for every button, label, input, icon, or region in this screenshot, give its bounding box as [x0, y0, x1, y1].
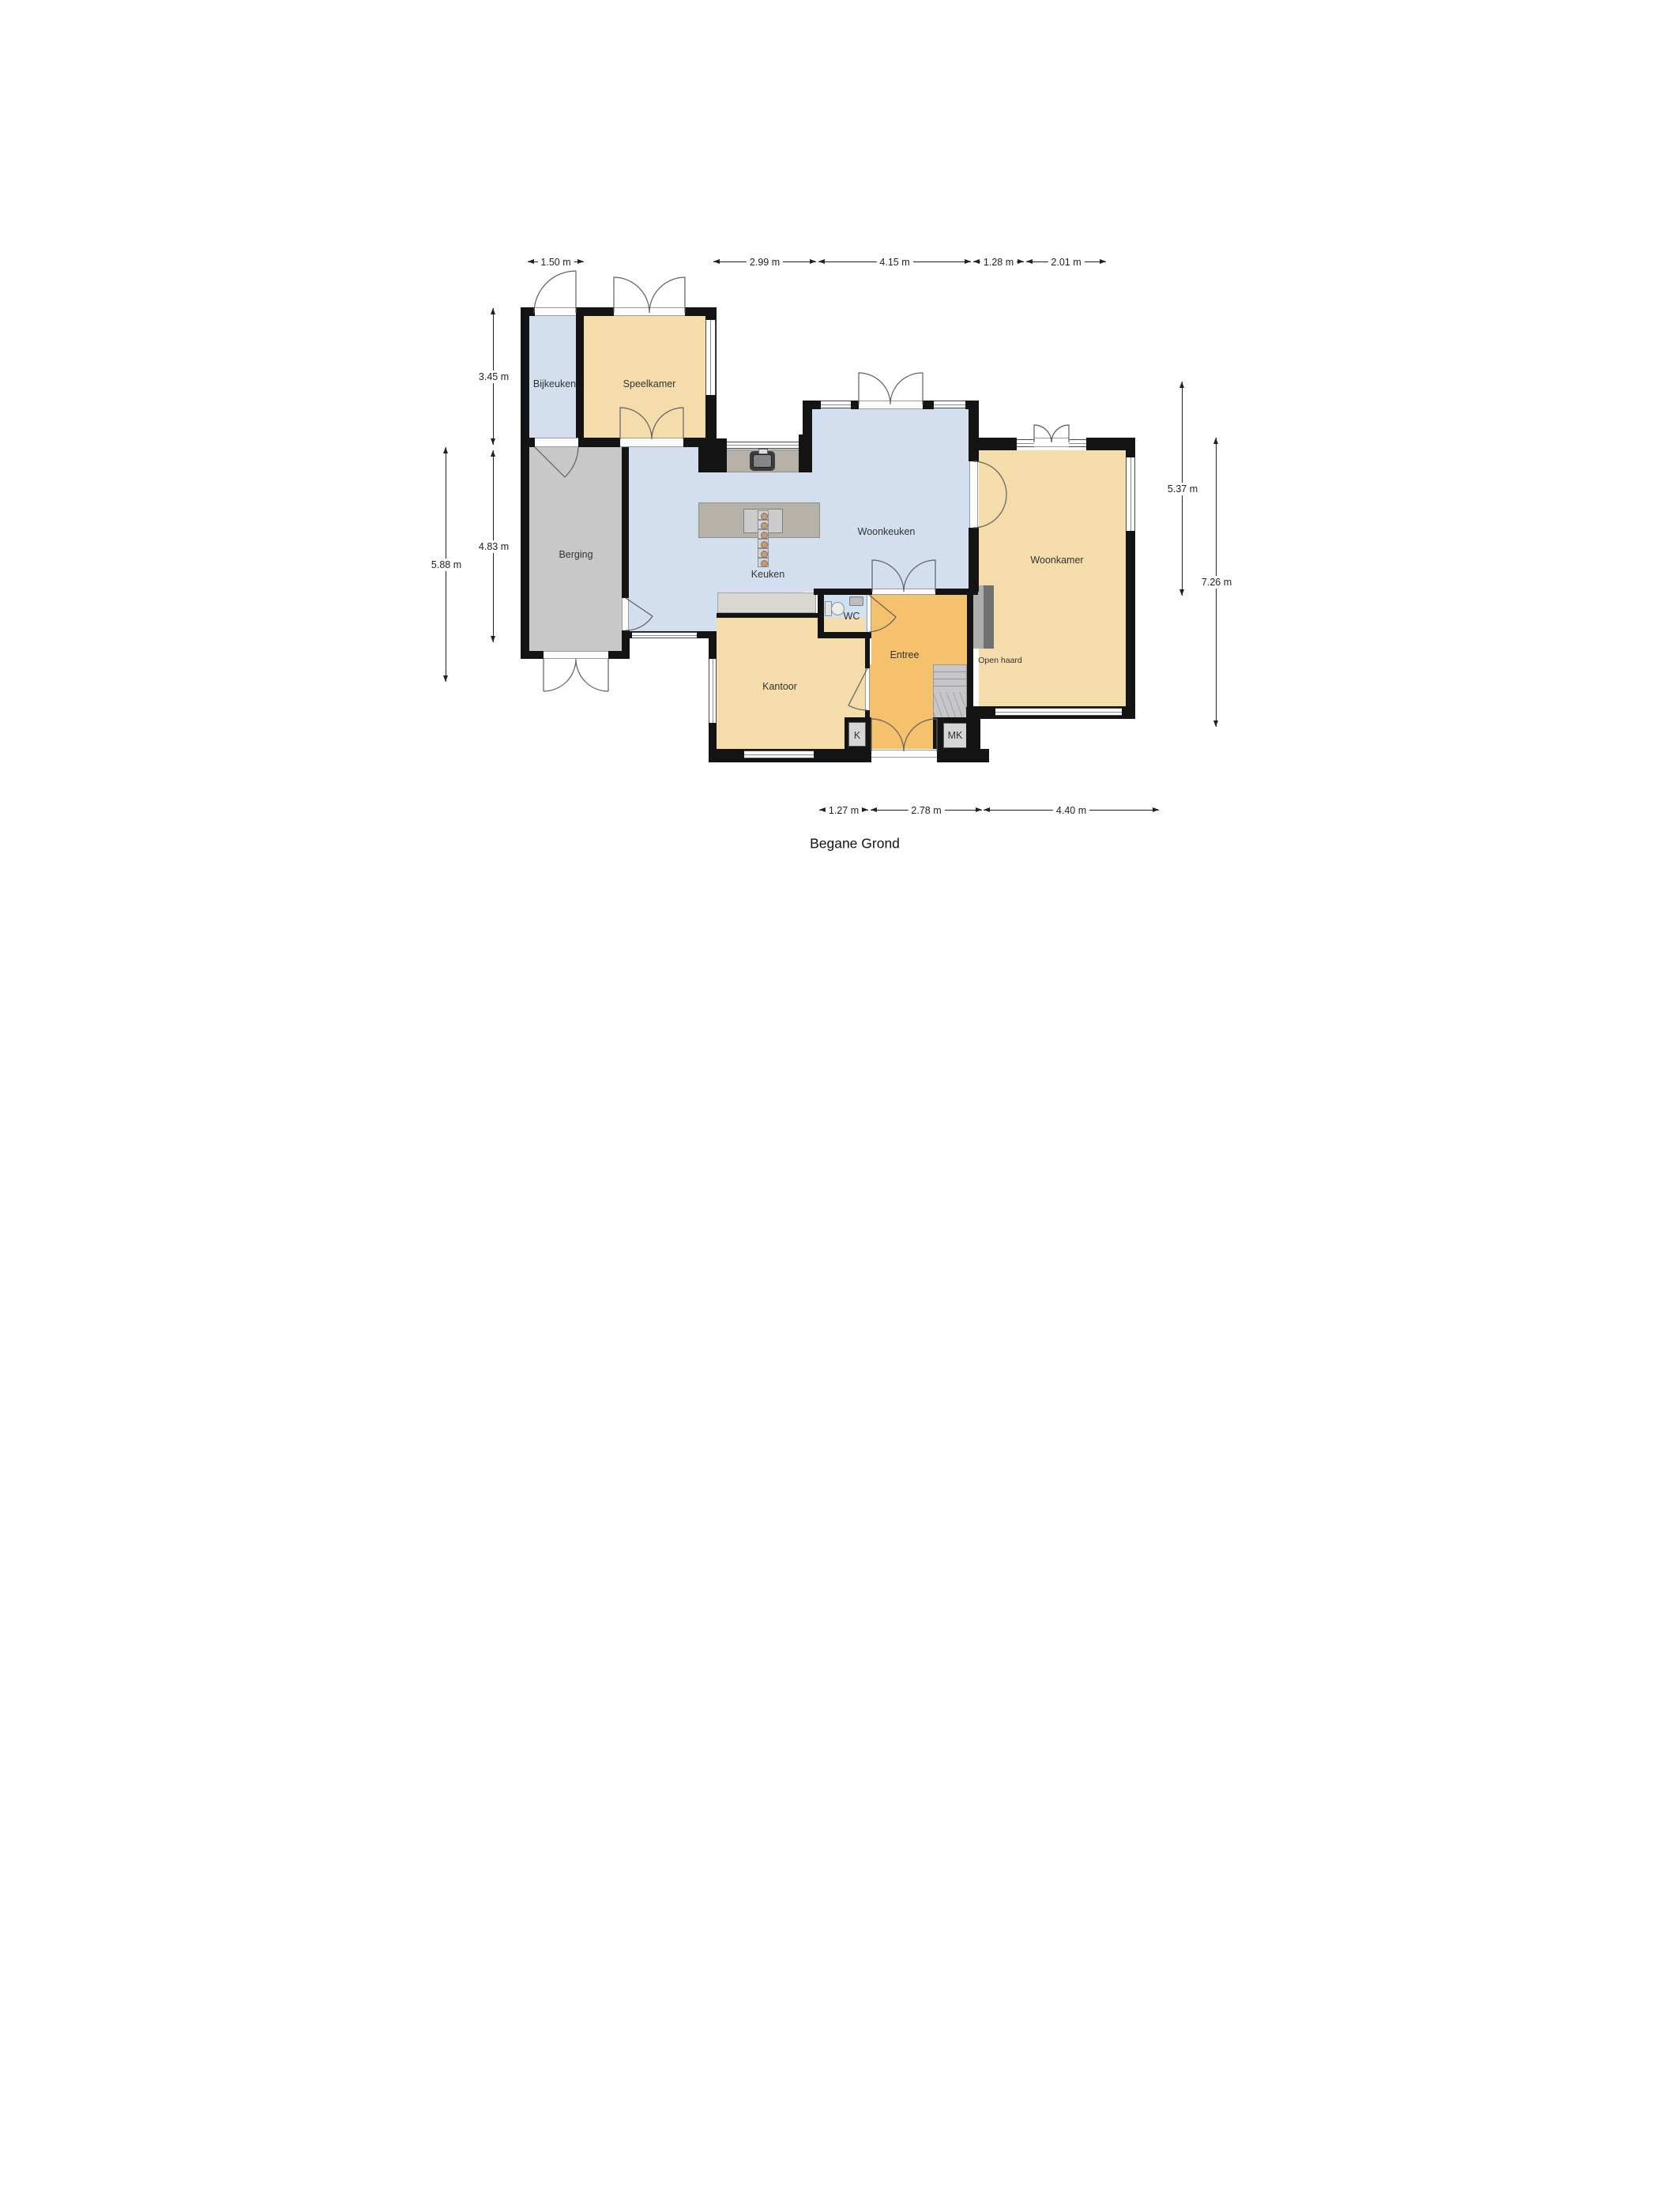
- dimension-left-1: 3.45 m: [493, 308, 494, 445]
- door-front-entry: [871, 719, 937, 751]
- room-label-bijkeuken: Bijkeuken: [533, 378, 576, 389]
- dimension-top-1: 1.50 m: [528, 261, 584, 262]
- door-swing-arcs: [415, 0, 1244, 1106]
- dimension-label: 2.01 m: [1048, 256, 1084, 269]
- dimension-label: 1.50 m: [537, 256, 574, 269]
- dimension-right-2: 7.26 m: [1216, 438, 1217, 727]
- door-berging-keuken: [626, 598, 653, 630]
- floor-plan: Bijkeuken Speelkamer Berging Keuken Woon…: [415, 0, 1244, 1106]
- door-woonkeuken-entree: [872, 560, 935, 592]
- dimension-bottom-2: 2.78 m: [871, 810, 982, 811]
- dimension-left-3: 5.88 m: [446, 447, 446, 682]
- room-label-speelkamer: Speelkamer: [623, 378, 676, 389]
- dimension-bottom-3: 4.40 m: [984, 810, 1159, 811]
- dimension-right-1: 5.37 m: [1182, 382, 1183, 596]
- room-label-wc: WC: [844, 611, 860, 622]
- dimension-left-2: 4.83 m: [493, 450, 494, 642]
- room-label-keuken: Keuken: [751, 569, 784, 580]
- dimension-top-3: 4.15 m: [818, 261, 971, 262]
- door-speelkamer-exterior: [614, 277, 685, 313]
- door-bijkeuken-exterior: [534, 271, 576, 313]
- door-speelkamer-keuken: [620, 408, 683, 439]
- room-label-mk: MK: [948, 730, 963, 741]
- dimension-label: 7.26 m: [1198, 576, 1235, 589]
- room-label-open-haard: Open haard: [978, 656, 1021, 665]
- dimension-label: 2.78 m: [908, 804, 944, 817]
- door-wc: [869, 595, 896, 632]
- dimension-label: 1.27 m: [826, 804, 862, 817]
- door-berging-exterior: [544, 659, 608, 691]
- dimension-label: 1.28 m: [980, 256, 1017, 269]
- room-label-berging: Berging: [559, 549, 592, 560]
- room-label-woonkeuken: Woonkeuken: [858, 526, 916, 537]
- door-woonkamer-exterior: [1034, 425, 1069, 442]
- dimension-label: 4.40 m: [1053, 804, 1089, 817]
- door-bijkeuken-berging: [535, 447, 578, 477]
- dimension-label: 5.88 m: [428, 559, 465, 571]
- door-woonkeuken-woonkamer: [973, 461, 1006, 528]
- dimension-top-2: 2.99 m: [713, 261, 816, 262]
- dimension-bottom-1: 1.27 m: [819, 810, 868, 811]
- door-kantoor: [848, 668, 867, 710]
- dimension-label: 4.15 m: [876, 256, 912, 269]
- dimension-top-4: 1.28 m: [973, 261, 1024, 262]
- dimension-label: 4.83 m: [476, 540, 512, 553]
- dimension-label: 2.99 m: [747, 256, 783, 269]
- dimension-label: 5.37 m: [1164, 483, 1201, 495]
- door-woonkeuken-exterior: [859, 373, 923, 404]
- room-label-k: K: [854, 730, 860, 741]
- room-label-entree: Entree: [890, 649, 920, 660]
- room-label-kantoor: Kantoor: [762, 681, 797, 692]
- dimension-top-5: 2.01 m: [1026, 261, 1106, 262]
- dimension-label: 3.45 m: [476, 371, 512, 383]
- floor-plan-page: Bijkeuken Speelkamer Berging Keuken Woon…: [415, 0, 1244, 1106]
- room-label-woonkamer: Woonkamer: [1030, 555, 1083, 566]
- page-title: Begane Grond: [810, 836, 900, 852]
